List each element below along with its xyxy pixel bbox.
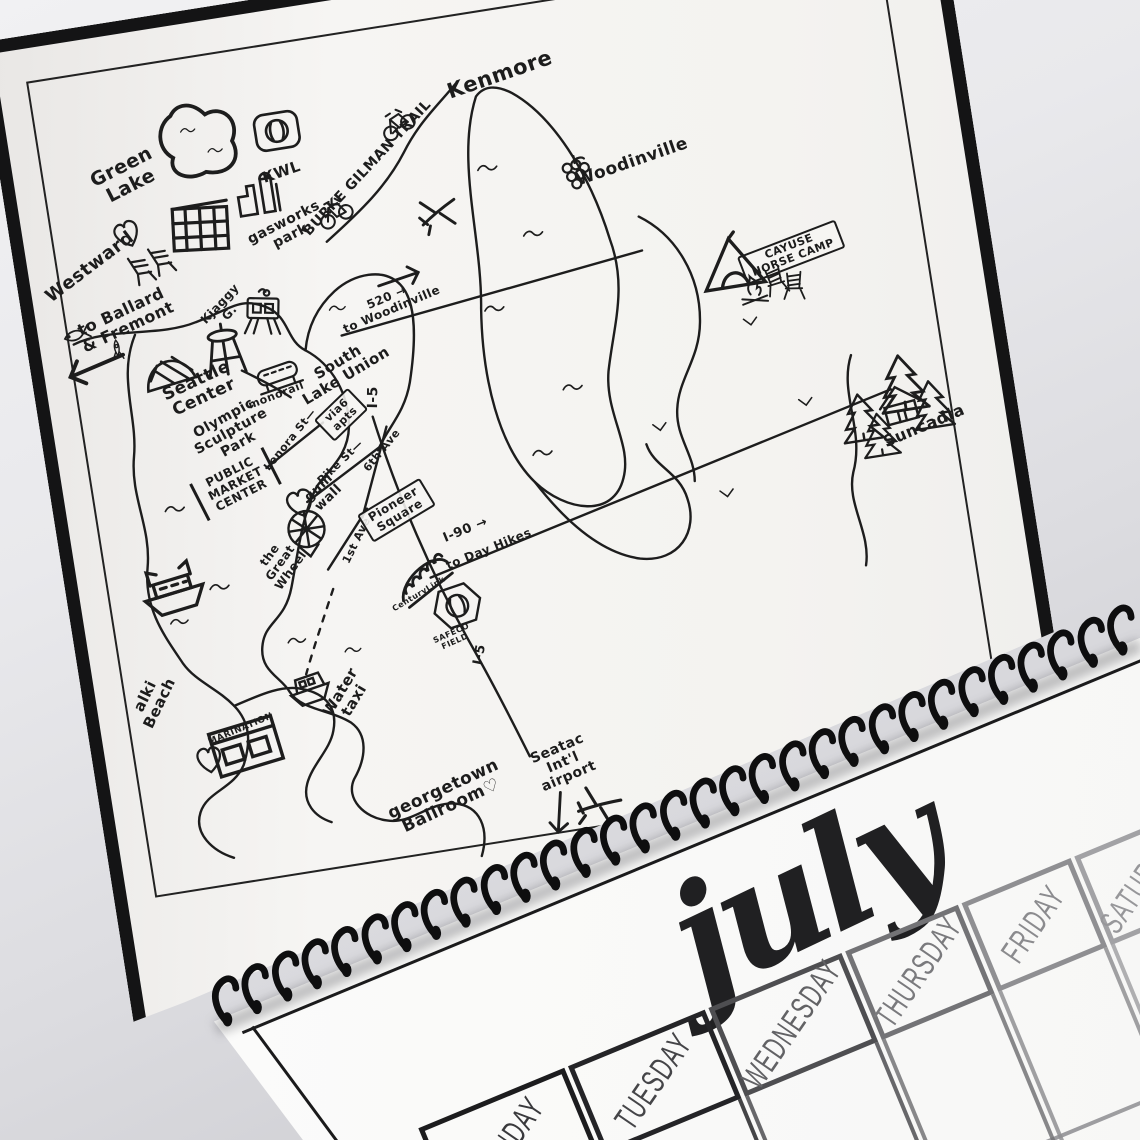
wave-icon <box>517 217 550 250</box>
tvball-icon <box>244 99 310 165</box>
wave-icon <box>478 292 511 325</box>
day-header-label: FRIDAY <box>995 879 1074 970</box>
chair-icon <box>778 265 815 302</box>
photo-scene: GreenLakeKWLKenmoreBURKE GILMAN TRAILWoo… <box>0 0 1140 1140</box>
houseboat-icon <box>236 285 290 339</box>
day-header-label: MONDAY <box>466 1090 554 1140</box>
i5-upper-label: I-5 <box>366 386 381 409</box>
wave-icon <box>164 606 194 636</box>
day-header-label: SATURDAY <box>1094 818 1140 941</box>
wave-icon <box>339 636 366 663</box>
wave-icon <box>203 138 228 163</box>
wave-icon <box>203 570 236 603</box>
wave-icon <box>324 294 351 321</box>
grapes-icon <box>549 148 604 203</box>
bird-icon <box>712 477 742 507</box>
bird-icon <box>735 305 765 335</box>
wave-icon <box>526 436 559 469</box>
calendar-grid-column-line <box>991 993 1140 1140</box>
wave-icon <box>282 625 312 655</box>
wave-icon <box>158 492 191 525</box>
heart-icon <box>187 737 231 781</box>
wave-icon <box>471 151 504 184</box>
day-header-label: TUESDAY <box>608 1027 701 1138</box>
bird-icon <box>645 411 675 441</box>
wave-icon <box>556 371 589 404</box>
wave-icon <box>175 118 200 143</box>
wbuilding-icon <box>162 187 243 268</box>
bird-icon <box>790 386 820 416</box>
